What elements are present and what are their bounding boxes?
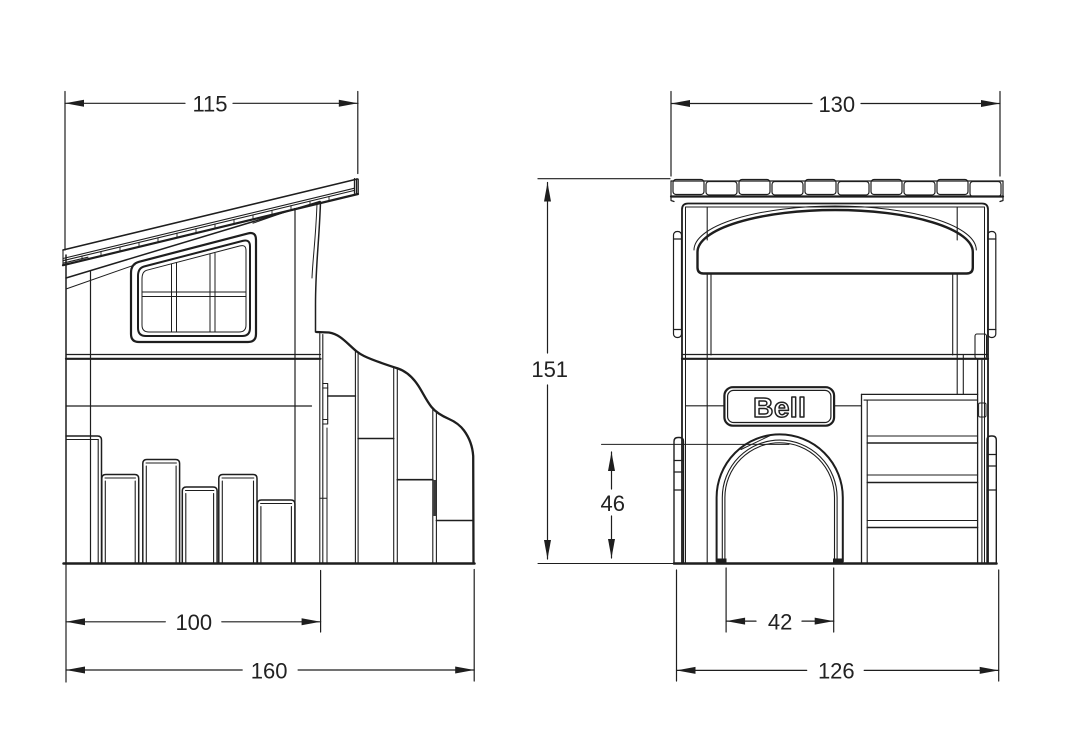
svg-text:42: 42	[768, 609, 792, 634]
svg-text:46: 46	[601, 491, 625, 516]
svg-text:115: 115	[192, 91, 227, 116]
svg-text:100: 100	[175, 610, 212, 635]
svg-text:Bell: Bell	[753, 392, 806, 423]
svg-text:130: 130	[818, 92, 855, 117]
svg-text:126: 126	[818, 659, 855, 684]
svg-text:151: 151	[531, 357, 568, 382]
svg-text:160: 160	[251, 659, 288, 684]
